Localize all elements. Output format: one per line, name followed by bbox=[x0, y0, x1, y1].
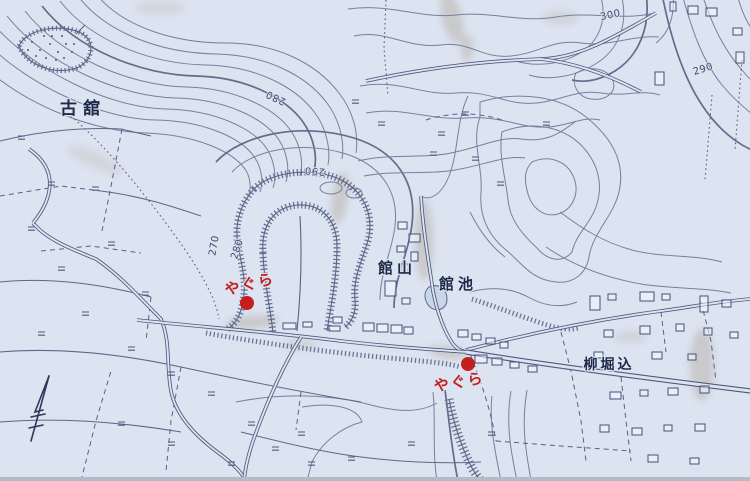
place-label-yanagihorikome: 柳堀込 bbox=[584, 356, 635, 373]
yagura-marker-dot-west bbox=[240, 296, 254, 310]
scan-edge bbox=[0, 477, 750, 481]
topographic-map: 280 290 270 280 300 290 古舘 館山 館池 柳堀込 やぐら… bbox=[0, 0, 750, 481]
yagura-marker-dot-east bbox=[461, 357, 475, 371]
map-photo: 280 290 270 280 300 290 古舘 館山 館池 柳堀込 やぐら… bbox=[0, 0, 750, 481]
elevation-290-mid: 290 bbox=[304, 164, 325, 177]
place-label-tateyama: 館山 bbox=[377, 259, 416, 277]
place-label-tateike: 館池 bbox=[438, 275, 477, 293]
place-label-furudate: 古舘 bbox=[60, 98, 106, 119]
